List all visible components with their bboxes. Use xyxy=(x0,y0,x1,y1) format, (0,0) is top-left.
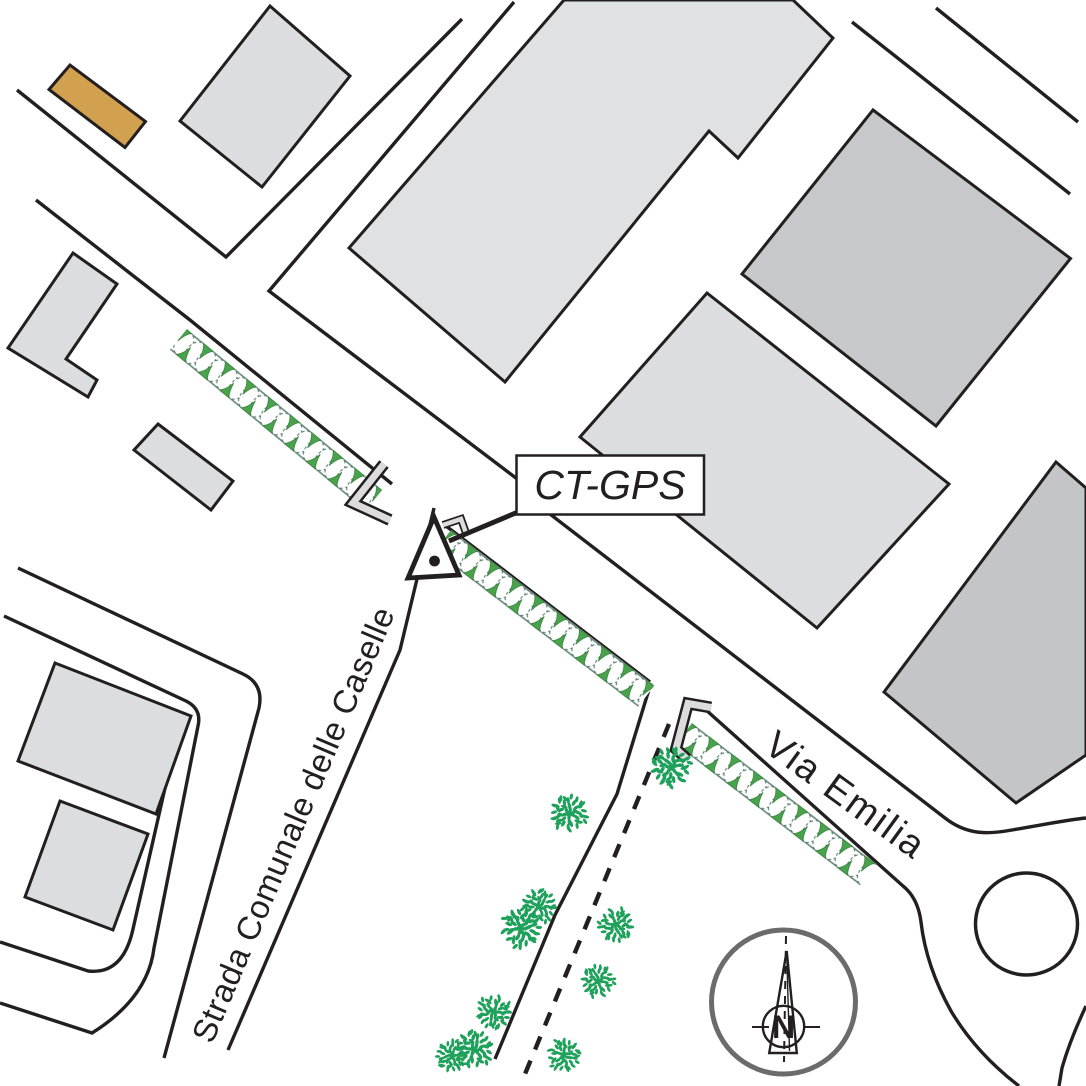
svg-text:CT-GPS: CT-GPS xyxy=(534,462,685,508)
svg-text:N: N xyxy=(772,1009,795,1045)
